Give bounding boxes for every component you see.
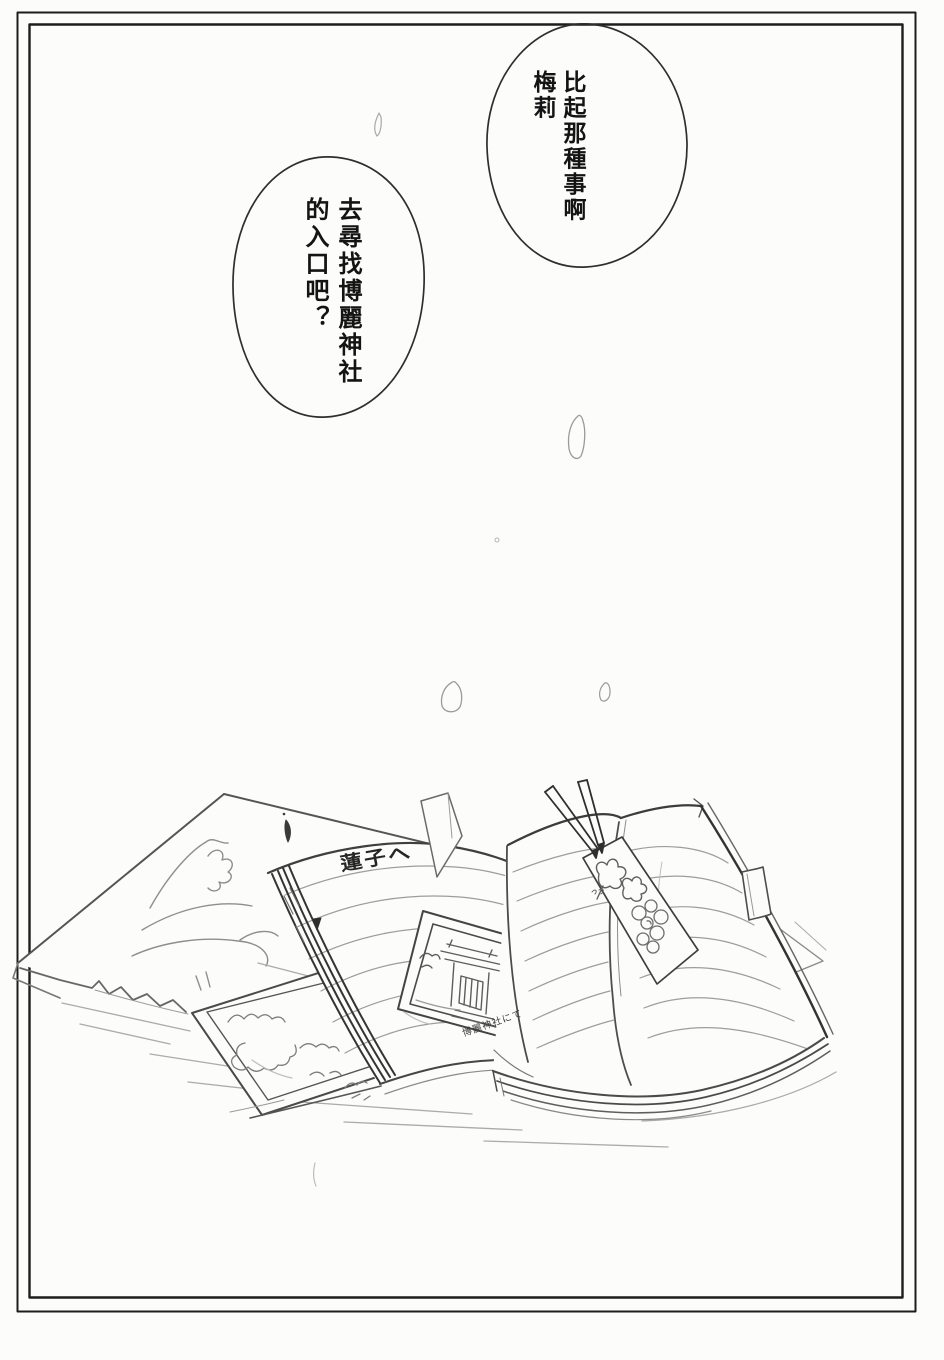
speech-line: 梅莉 <box>527 70 557 245</box>
still-life <box>13 780 836 1147</box>
speech-line: 比起那種事啊 <box>557 70 587 245</box>
speech-bubble-right-text: 比起那種事啊 梅莉 <box>527 70 587 245</box>
speech-bubble-left-text: 去尋找博麗神社 的入口吧？ <box>297 197 363 402</box>
panel-frame <box>18 13 916 1312</box>
manga-page-artwork <box>0 0 944 1360</box>
speech-line: 去尋找博麗神社 <box>330 197 363 402</box>
speech-line: 的入口吧？ <box>297 197 330 402</box>
